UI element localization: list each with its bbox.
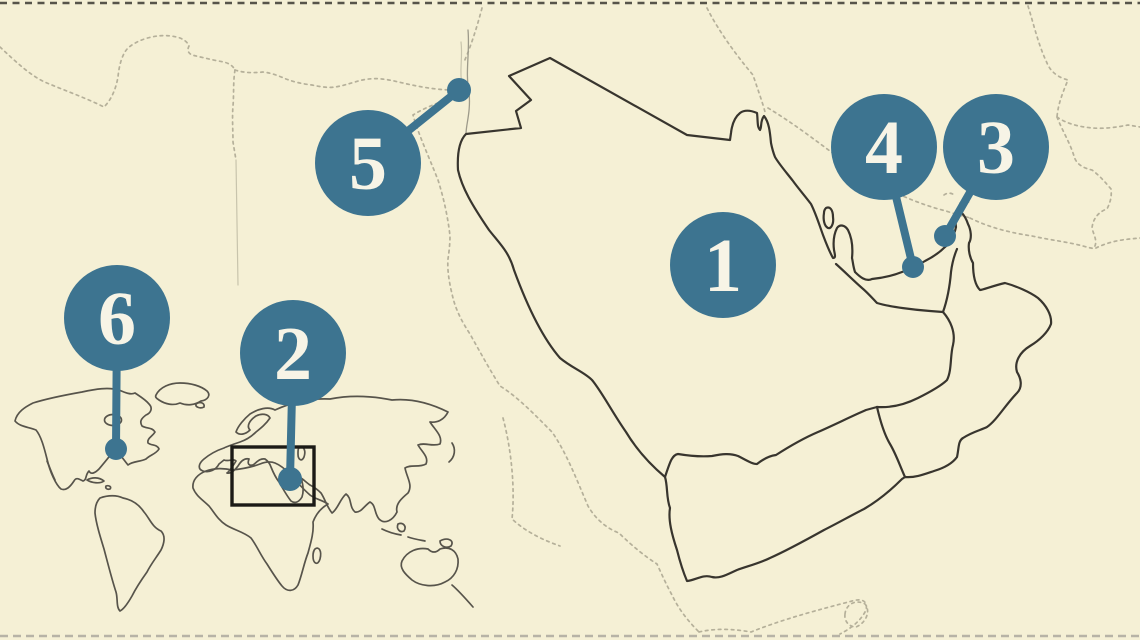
marker-4: 4	[831, 94, 937, 278]
inset-hispaniola	[106, 486, 111, 490]
islet-dotted-strait-1	[944, 193, 955, 196]
marker-5-label: 5	[349, 122, 387, 206]
map-stage: 1 2 3 4 5 6	[0, 0, 1140, 640]
border-dotted-northwest	[0, 36, 235, 107]
border-faint-egypt-vertical	[236, 160, 238, 285]
border-dotted-north	[235, 70, 453, 90]
inset-indonesia-2	[408, 537, 425, 541]
border-dotted-iran-east	[1057, 117, 1140, 128]
inset-japan	[449, 443, 454, 462]
inset-madagascar	[313, 548, 321, 563]
coast-dotted-iran-hormuz	[970, 218, 1140, 248]
marker-5: 5	[315, 78, 471, 216]
inset-new-zealand	[452, 585, 473, 607]
border-dotted-africa-inland	[503, 418, 560, 546]
dotted-borders	[0, 6, 1140, 634]
inset-north-america	[15, 389, 159, 490]
inset-south-america	[95, 496, 164, 611]
bahrain-island	[824, 207, 834, 228]
marker-4-dot[interactable]	[902, 256, 924, 278]
saudi-uae-border	[836, 264, 943, 312]
coast-dotted-horn-of-africa	[699, 600, 866, 634]
marker-6-label: 6	[98, 277, 136, 361]
markers: 1 2 3 4 5 6	[64, 78, 1049, 491]
marker-3: 3	[934, 94, 1049, 247]
border-dotted-syria	[464, 8, 482, 62]
border-dotted-iran-south	[1057, 117, 1111, 248]
marker-4-label: 4	[865, 106, 903, 190]
inset-baja	[47, 461, 55, 480]
marker-5-dot[interactable]	[447, 78, 471, 102]
inset-iceland	[196, 403, 204, 408]
marker-3-label: 3	[977, 106, 1015, 190]
border-dotted-iraq-iran	[707, 8, 765, 112]
inset-eurasia	[199, 396, 448, 521]
inset-greenland	[156, 383, 209, 405]
inset-africa	[193, 462, 328, 590]
marker-1-label: 1	[704, 224, 742, 308]
uae-oman-border	[943, 249, 957, 312]
page-edge-dashes	[0, 3, 1140, 636]
map-canvas: 1 2 3 4 5 6	[0, 0, 1140, 640]
saudi-yemen-border	[665, 407, 877, 477]
marker-6-dot[interactable]	[105, 438, 127, 460]
marker-2-dot[interactable]	[278, 467, 302, 491]
inset-australia	[401, 548, 458, 586]
world-inset-map	[15, 383, 473, 611]
marker-1: 1	[670, 212, 776, 318]
border-dotted-iran-top	[1028, 6, 1068, 117]
marker-2-label: 2	[274, 312, 312, 396]
inset-new-guinea	[440, 539, 452, 547]
inset-cuba	[87, 478, 104, 483]
marker-3-dot[interactable]	[934, 225, 956, 247]
inset-borneo	[397, 523, 405, 531]
saudi-oman-border	[877, 312, 954, 407]
border-dotted-jordan-redsea	[413, 98, 699, 632]
border-dotted-west-vertical	[233, 70, 236, 160]
yemen-oman-border	[877, 407, 905, 477]
inset-caspian-sea	[298, 447, 305, 460]
